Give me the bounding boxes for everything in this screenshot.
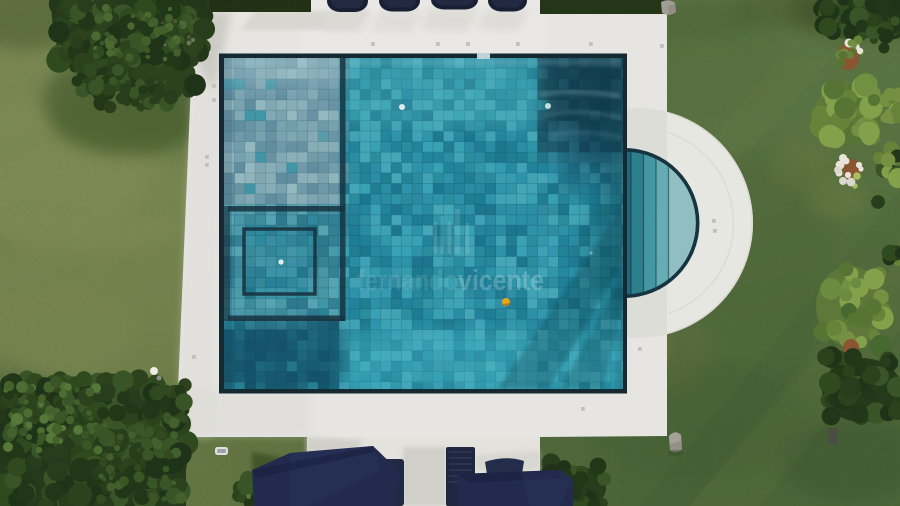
svg-text:fotografia de arquitectura: fotografia de arquitectura [385, 292, 515, 299]
